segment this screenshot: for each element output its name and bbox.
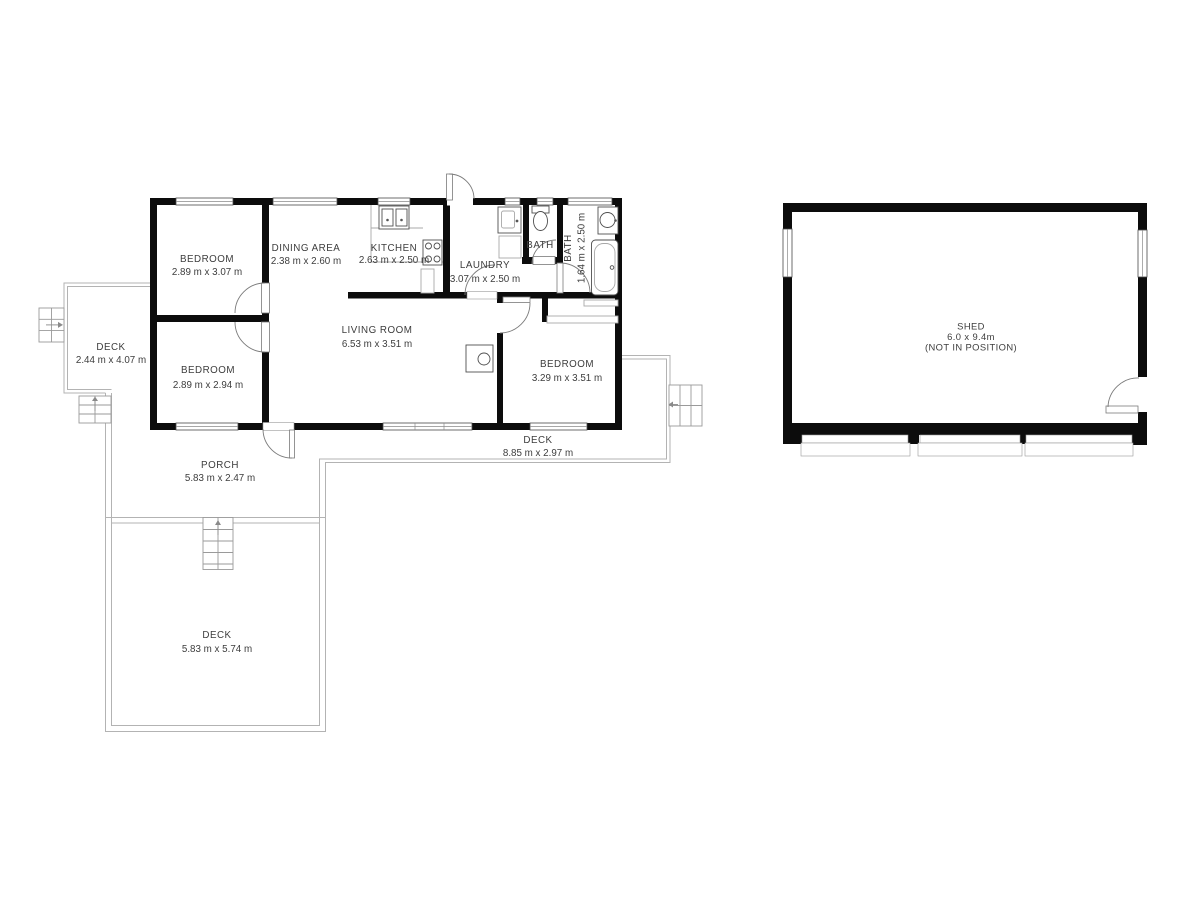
laundry-fixtures — [498, 207, 521, 258]
porch-and-deck-outline-outer — [106, 356, 671, 732]
dining-label: DINING AREA — [272, 243, 341, 254]
kitchen-sink-basin-left — [382, 209, 393, 226]
living-label: LIVING ROOM — [342, 325, 413, 336]
laundry-faucet — [516, 220, 519, 223]
bedroom1-door-leaf — [262, 283, 270, 313]
bath-main-door-leaf — [557, 263, 563, 293]
living-room-fixtures — [466, 345, 493, 372]
laundry-sink-basin — [502, 211, 515, 228]
bedroom3-door-leaf — [503, 297, 530, 303]
shed-bay-threshold — [1026, 435, 1132, 443]
laundry-dims: 3.07 m x 2.50 m — [450, 274, 520, 285]
shed-dims: 6.0 x 9.4m — [947, 331, 995, 342]
bath-main-fixtures — [592, 207, 619, 295]
basin-faucet — [614, 219, 617, 222]
porch-door-leaf — [290, 430, 295, 458]
living-dims: 6.53 m x 3.51 m — [342, 339, 412, 350]
shed-bay-panel — [918, 443, 1022, 456]
deck-west-outline-outer — [64, 283, 150, 393]
laundry-label: LAUNDRY — [460, 260, 510, 271]
porch-door-opening — [263, 423, 294, 431]
shed-bay-threshold — [802, 435, 908, 443]
shed-door-opening — [1138, 377, 1148, 412]
deck-east-dims: 8.85 m x 2.97 m — [503, 448, 573, 459]
wood-heater-flue — [478, 353, 490, 365]
bedroom2-dims: 2.89 m x 2.94 m — [173, 380, 243, 391]
stove-burner — [434, 256, 440, 262]
sink-drain — [386, 219, 389, 222]
kitchen-sink-basin-right — [396, 209, 407, 226]
shed-door-arc — [1108, 378, 1139, 407]
bedroom3-label: BEDROOM — [540, 359, 594, 370]
kitchen-cabinet — [421, 269, 434, 293]
shed-bay-panel — [1025, 443, 1133, 456]
toilet-bowl — [534, 212, 548, 231]
stairs-deck-east — [669, 385, 703, 426]
entry-door-leaf — [447, 174, 453, 200]
deck-west-outline-inner — [68, 287, 151, 390]
shed-door-leaf — [1106, 406, 1138, 413]
washing-machine — [499, 236, 521, 258]
bathroom-basin-bowl — [600, 213, 615, 228]
floor-plan-canvas: BEDROOM 2.89 m x 3.07 m DINING AREA 2.38… — [0, 0, 1200, 900]
house-exterior-walls — [150, 198, 622, 430]
bedroom3-dims: 3.29 m x 3.51 m — [532, 373, 602, 384]
deck-south-label: DECK — [202, 630, 231, 641]
porch-dims: 5.83 m x 2.47 m — [185, 473, 255, 484]
bedroom3-door-arc — [500, 303, 530, 333]
bedroom2-door-arc — [235, 322, 265, 352]
bath-main-label: BATH — [563, 234, 574, 261]
bedroom2-door-leaf — [262, 322, 270, 352]
wardrobe-slider — [584, 300, 618, 306]
sink-drain — [400, 219, 403, 222]
bedroom3-wardrobe — [547, 300, 618, 323]
floor-plan-page: BEDROOM 2.89 m x 3.07 m DINING AREA 2.38… — [0, 0, 1200, 900]
bedroom1-dims: 2.89 m x 3.07 m — [172, 267, 242, 278]
bath-small-door-leaf — [533, 257, 555, 265]
bath-main-dims: 1.64 m x 2.50 m — [577, 213, 588, 283]
shed-bay-doors — [801, 435, 1133, 456]
deck-west-label: DECK — [96, 342, 125, 353]
stairs-walkway-west — [79, 396, 111, 423]
dining-dims: 2.38 m x 2.60 m — [271, 256, 341, 267]
deck-east-label: DECK — [523, 435, 552, 446]
porch-label: PORCH — [201, 460, 239, 471]
shed-bay-threshold — [920, 435, 1020, 443]
bath-small-fixtures — [532, 206, 549, 231]
stairs-deck-south — [203, 518, 233, 570]
shed-note: (NOT IN POSITION) — [925, 342, 1017, 353]
stairs-deck-west — [39, 308, 64, 342]
kitchen-label: KITCHEN — [371, 243, 418, 254]
bedroom2-label: BEDROOM — [181, 365, 235, 376]
stove-burner — [434, 243, 440, 249]
bedroom1-label: BEDROOM — [180, 254, 234, 265]
wardrobe-front — [547, 316, 618, 323]
porch-and-deck-outline-inner — [112, 359, 667, 726]
deck-west-dims: 2.44 m x 4.07 m — [76, 355, 146, 366]
kitchen-dims: 2.63 m x 2.50 m — [359, 255, 429, 266]
bathtub-faucet — [610, 266, 614, 270]
bath-small-label: BATH — [526, 240, 553, 251]
stove-burner — [426, 243, 432, 249]
laundry-door-opening — [467, 292, 497, 300]
shed-bay-panel — [801, 443, 910, 456]
deck-south-dims: 5.83 m x 5.74 m — [182, 644, 252, 655]
porch-door-arc — [263, 429, 292, 458]
bedroom1-door-arc — [235, 283, 265, 313]
shed-label: SHED — [957, 321, 985, 332]
shed-window-midlines — [788, 229, 1143, 277]
